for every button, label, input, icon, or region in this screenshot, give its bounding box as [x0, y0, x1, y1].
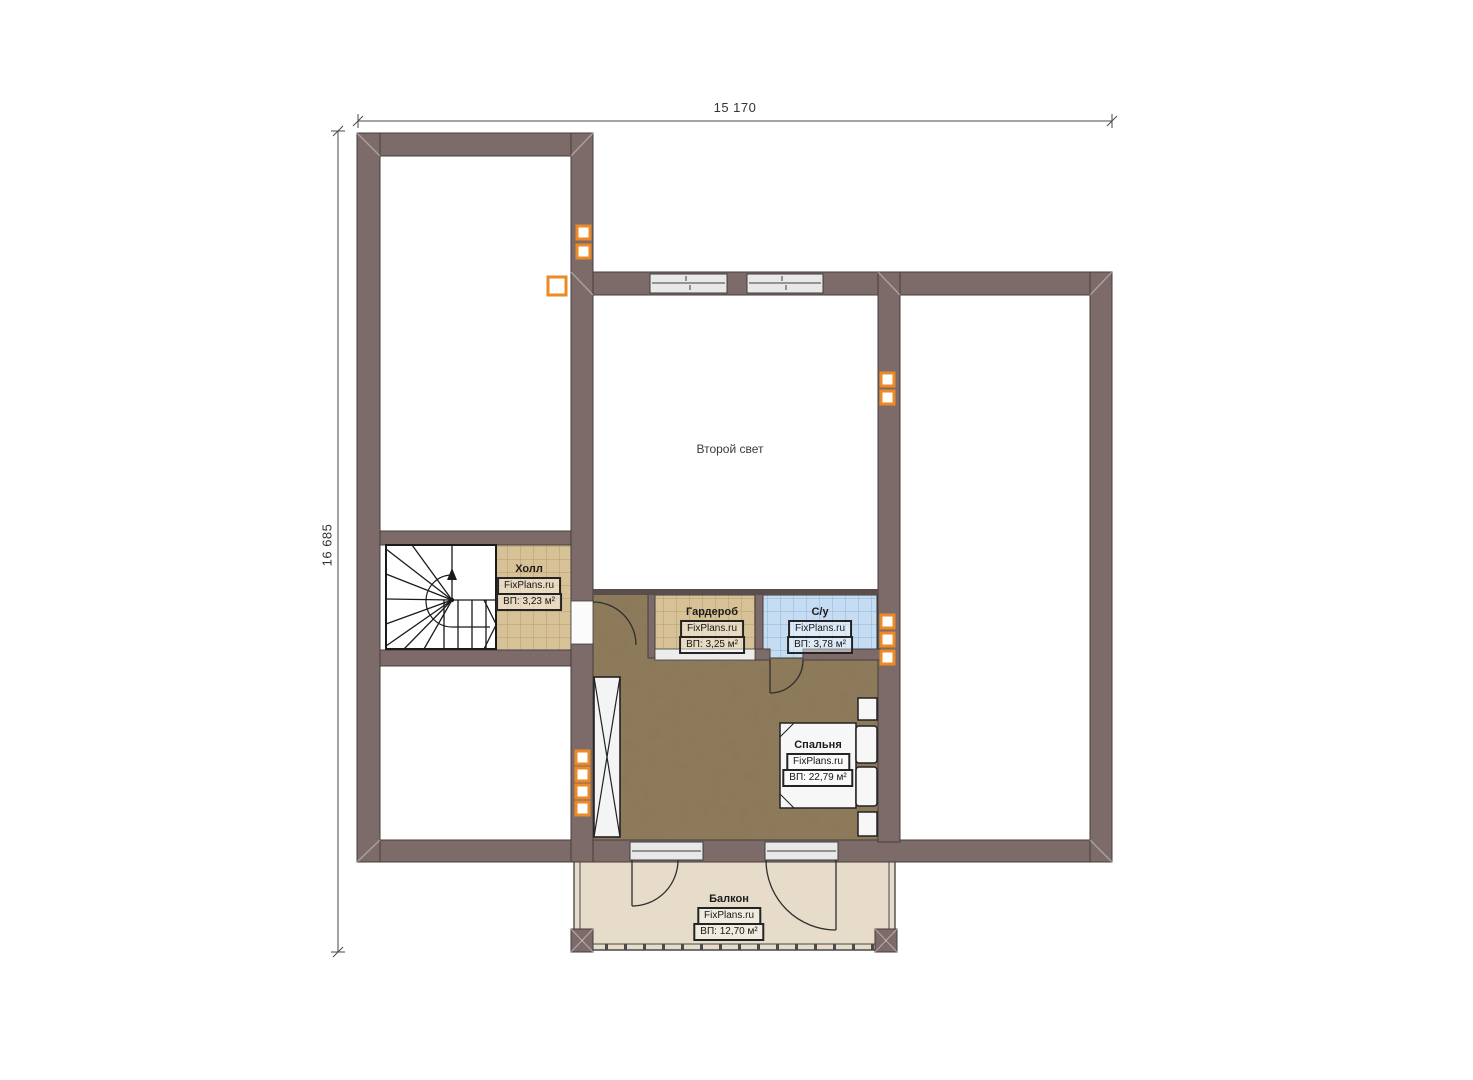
vent-marker — [881, 633, 894, 646]
vent-marker — [881, 373, 894, 386]
room-label-hall: Холл FixPlans.ru ВП: 3,23 м² — [496, 563, 562, 611]
staircase — [386, 545, 496, 649]
room-area: ВП: 3,23 м² — [496, 593, 562, 611]
room-label-bedroom: Спальня FixPlans.ru ВП: 22,79 м² — [782, 739, 853, 787]
nightstand-top — [858, 698, 877, 720]
room-name: Спальня — [794, 739, 842, 751]
vent-marker — [577, 245, 590, 258]
vent-marker — [881, 651, 894, 664]
room-area: ВП: 3,78 м² — [787, 636, 853, 654]
room-name: Гардероб — [686, 606, 738, 618]
room-name: Холл — [515, 563, 543, 575]
room-right — [898, 293, 1090, 842]
room-label-second-light: Второй свет — [696, 442, 763, 456]
vent-marker — [576, 751, 589, 764]
closet — [594, 677, 620, 837]
room-name: С/у — [811, 606, 828, 618]
room-name: Балкон — [709, 893, 749, 905]
room-area: ВП: 22,79 м² — [782, 769, 853, 787]
room-label-bathroom: С/у FixPlans.ru ВП: 3,78 м² — [787, 606, 853, 654]
room-top-left — [380, 155, 571, 535]
vent-marker — [576, 768, 589, 781]
floor-plan-canvas: 15 170 16 685 Второй свет Холл FixPlans.… — [0, 0, 1473, 1080]
hall-door-opening — [571, 601, 593, 644]
dimension-height-label: 16 685 — [320, 524, 335, 567]
window-top-b — [747, 274, 823, 293]
balcony-door-sill-a — [630, 842, 703, 860]
room-area: ВП: 3,25 м² — [679, 636, 745, 654]
dimension-width-label: 15 170 — [358, 100, 1112, 115]
pillow-bottom — [856, 767, 877, 806]
corner-column-marker — [548, 277, 566, 295]
pillow-top — [856, 726, 877, 763]
vent-marker — [881, 615, 894, 628]
nightstand-bottom — [858, 812, 877, 836]
vent-marker — [576, 802, 589, 815]
room-label-wardrobe: Гардероб FixPlans.ru ВП: 3,25 м² — [679, 606, 745, 654]
room-label-balcony: Балкон FixPlans.ru ВП: 12,70 м² — [693, 893, 764, 941]
vent-marker — [577, 226, 590, 239]
window-top-a — [650, 274, 727, 293]
room-area: ВП: 12,70 м² — [693, 923, 764, 941]
vent-marker — [576, 785, 589, 798]
room-bottom-left — [380, 665, 571, 840]
balcony-door-sill-b — [765, 842, 838, 860]
vent-marker — [881, 391, 894, 404]
